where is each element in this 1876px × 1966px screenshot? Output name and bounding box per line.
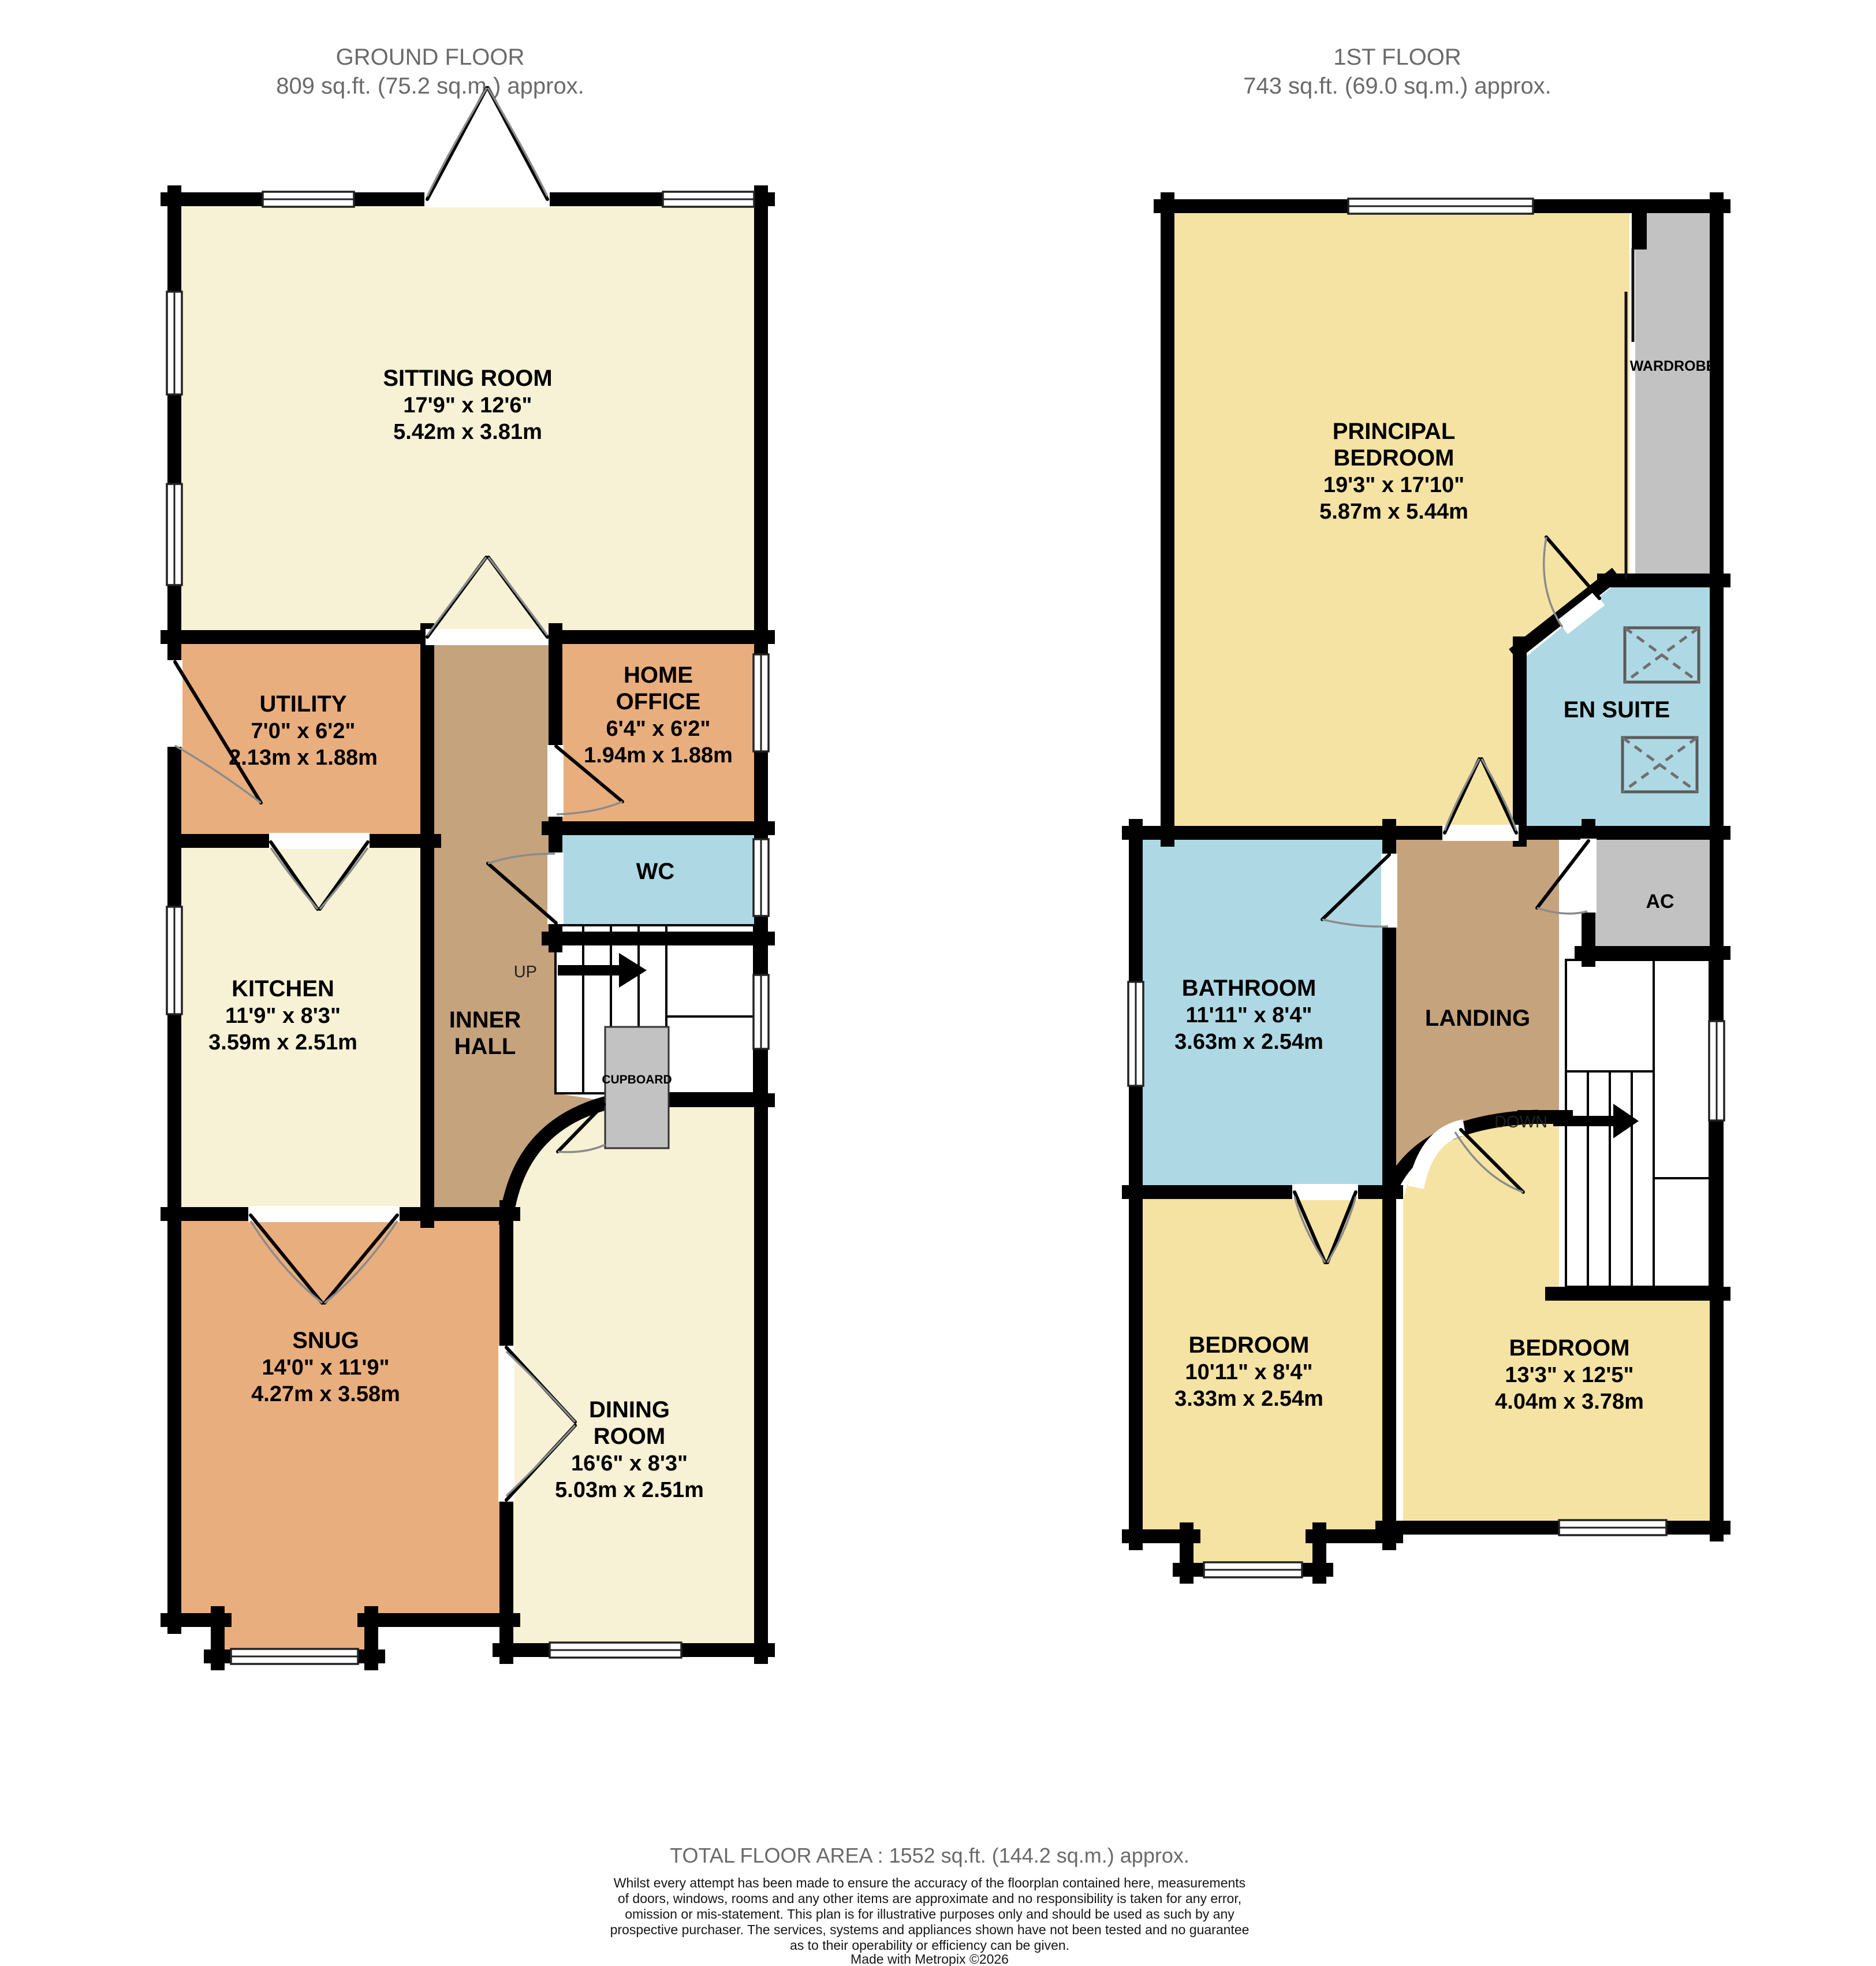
utility-imperial: 7'0" x 6'2"	[251, 719, 356, 743]
kitchen-imperial: 11'9" x 8'3"	[225, 1004, 341, 1028]
ground-floor-plan: SITTING ROOM 17'9" x 12'6" 5.42m x 3.81m…	[166, 88, 769, 1664]
first-floor-header: 1ST FLOOR 743 sq.ft. (69.0 sq.m.) approx…	[1243, 44, 1551, 99]
wardrobe-area	[1635, 213, 1710, 580]
floorplan-canvas: GROUND FLOOR 809 sq.ft. (75.2 sq.m.) app…	[0, 0, 1876, 1966]
ac-label: AC	[1646, 891, 1674, 913]
landing-label: LANDING	[1425, 1006, 1530, 1031]
snug-imperial: 14'0" x 11'9"	[262, 1356, 389, 1380]
french-doors	[424, 88, 550, 207]
home-office-imperial: 6'4" x 6'2"	[606, 717, 711, 741]
window	[1128, 982, 1143, 1086]
dining-room-label-2: ROOM	[594, 1424, 665, 1449]
ground-floor-header: GROUND FLOOR 809 sq.ft. (75.2 sq.m.) app…	[276, 44, 584, 99]
window	[754, 839, 769, 916]
snug-area	[174, 1214, 499, 1656]
sitting-room-label: SITTING ROOM	[383, 366, 552, 391]
home-office-label-2: OFFICE	[616, 689, 701, 714]
bedroom-left-metric: 3.33m x 2.54m	[1174, 1387, 1323, 1411]
snug-label: SNUG	[292, 1328, 359, 1353]
sitting-room-metric: 5.42m x 3.81m	[393, 420, 542, 444]
window	[1709, 1021, 1724, 1120]
sitting-room-area	[174, 199, 761, 637]
window	[754, 975, 769, 1049]
first-floor-plan: PRINCIPAL BEDROOM 19'3" x 17'10" 5.87m x…	[1128, 199, 1724, 1577]
disclaimer-line-3: omission or mis-statement. This plan is …	[625, 1907, 1234, 1922]
window	[663, 192, 754, 207]
disclaimer-line-4: prospective purchaser. The services, sys…	[610, 1922, 1250, 1937]
disclaimer-line-1: Whilst every attempt has been made to en…	[614, 1875, 1245, 1890]
inner-hall-area	[427, 637, 555, 1215]
bathroom-metric: 3.63m x 2.54m	[1174, 1030, 1323, 1054]
snug-metric: 4.27m x 3.58m	[251, 1382, 400, 1406]
cupboard-label: CUPBOARD	[602, 1073, 672, 1086]
bedroom-left-label: BEDROOM	[1189, 1332, 1310, 1358]
home-office-label-1: HOME	[624, 662, 693, 688]
dining-room-label-1: DINING	[589, 1397, 670, 1423]
bedroom-right-label: BEDROOM	[1509, 1335, 1630, 1361]
window	[550, 1643, 681, 1658]
window	[1348, 199, 1533, 214]
bedroom-right-imperial: 13'3" x 12'5"	[1505, 1363, 1633, 1387]
footer: TOTAL FLOOR AREA : 1552 sq.ft. (144.2 sq…	[610, 1844, 1250, 1966]
inner-hall-label-1: INNER	[449, 1007, 521, 1033]
principal-bedroom-label-1: PRINCIPAL	[1333, 419, 1456, 444]
inner-hall-label-2: HALL	[454, 1034, 516, 1059]
kitchen-label: KITCHEN	[232, 976, 334, 1001]
wardrobe-label: WARDROBE	[1630, 358, 1716, 374]
principal-bedroom-metric: 5.87m x 5.44m	[1319, 500, 1468, 524]
home-office-metric: 1.94m x 1.88m	[584, 743, 733, 768]
first-floor-title: 1ST FLOOR	[1333, 44, 1461, 70]
window	[167, 292, 182, 394]
window	[1559, 1520, 1666, 1535]
principal-bedroom-imperial: 19'3" x 17'10"	[1323, 473, 1464, 497]
window	[1204, 1562, 1302, 1577]
ground-floor-title: GROUND FLOOR	[336, 44, 525, 70]
sitting-room-imperial: 17'9" x 12'6"	[403, 393, 532, 418]
kitchen-metric: 3.59m x 2.51m	[208, 1030, 357, 1055]
dining-room-area	[513, 1107, 761, 1650]
wc-label: WC	[636, 859, 675, 884]
utility-label: UTILITY	[259, 691, 346, 717]
floorplan-page: GROUND FLOOR 809 sq.ft. (75.2 sq.m.) app…	[0, 0, 1876, 1966]
disclaimer-line-2: of doors, windows, rooms and any other i…	[618, 1891, 1241, 1906]
credit-line: Made with Metropix ©2026	[851, 1952, 1009, 1966]
ground-floor-area: 809 sq.ft. (75.2 sq.m.) approx.	[276, 73, 584, 99]
utility-metric: 2.13m x 1.88m	[229, 746, 378, 770]
dining-room-metric: 5.03m x 2.51m	[555, 1478, 704, 1502]
bedroom-right-metric: 4.04m x 3.78m	[1495, 1390, 1644, 1414]
en-suite-label: EN SUITE	[1564, 697, 1670, 723]
principal-bedroom-label-2: BEDROOM	[1334, 445, 1454, 471]
dining-room-imperial: 16'6" x 8'3"	[571, 1451, 688, 1476]
window	[263, 192, 354, 207]
window	[754, 654, 769, 751]
down-label: DOWN	[1494, 1113, 1547, 1131]
bedroom-left-imperial: 10'11" x 8'4"	[1185, 1360, 1312, 1384]
window	[167, 907, 182, 1014]
disclaimer-line-5: as to their operability or efficiency ca…	[790, 1938, 1069, 1953]
first-floor-area: 743 sq.ft. (69.0 sq.m.) approx.	[1243, 73, 1551, 99]
up-label: UP	[514, 963, 537, 981]
bathroom-label: BATHROOM	[1182, 975, 1316, 1001]
window	[167, 484, 182, 585]
window	[231, 1649, 358, 1664]
total-floor-area: TOTAL FLOOR AREA : 1552 sq.ft. (144.2 sq…	[670, 1844, 1189, 1867]
bathroom-imperial: 11'11" x 8'4"	[1186, 1003, 1312, 1027]
